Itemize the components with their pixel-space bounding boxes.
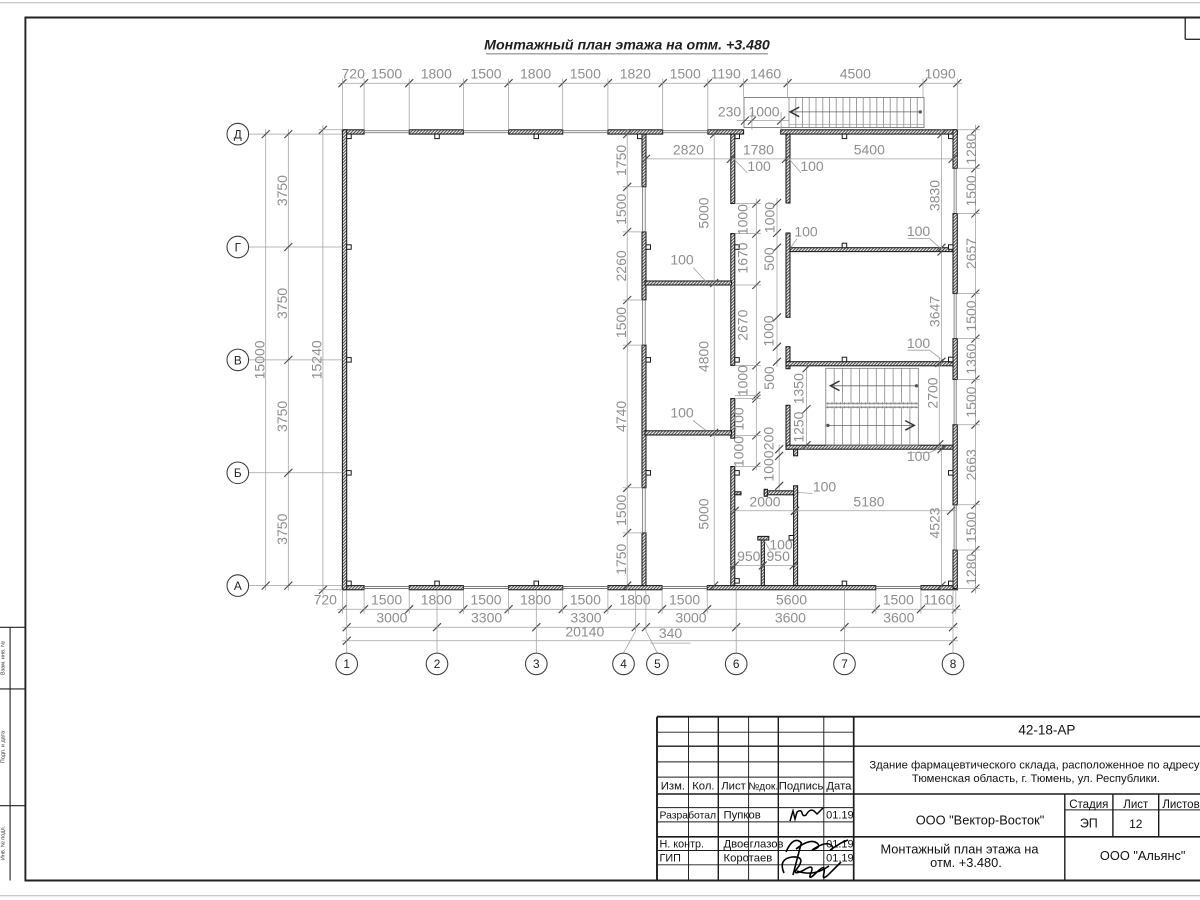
svg-text:12: 12 <box>1129 817 1143 831</box>
svg-text:ЭП: ЭП <box>1080 817 1098 831</box>
svg-text:3830: 3830 <box>927 180 943 211</box>
svg-text:3300: 3300 <box>471 610 502 626</box>
svg-text:2700: 2700 <box>925 377 941 408</box>
svg-text:340: 340 <box>659 625 683 641</box>
svg-text:Дата: Дата <box>826 780 852 792</box>
svg-text:1190: 1190 <box>711 66 741 82</box>
svg-text:5180: 5180 <box>853 493 884 509</box>
svg-text:1500: 1500 <box>963 512 979 543</box>
svg-text:100: 100 <box>794 224 818 240</box>
svg-text:Б: Б <box>234 466 242 480</box>
svg-text:ГИП: ГИП <box>660 853 681 865</box>
svg-text:1750: 1750 <box>613 544 629 575</box>
svg-text:500: 500 <box>761 247 777 271</box>
svg-text:1250: 1250 <box>791 411 807 442</box>
svg-text:Листов: Листов <box>1162 799 1199 811</box>
svg-text:8: 8 <box>950 657 957 671</box>
svg-text:Кол.: Кол. <box>692 780 714 792</box>
svg-text:100: 100 <box>731 407 747 431</box>
svg-text:Разработал: Разработал <box>660 810 717 822</box>
svg-text:Монтажный план этажа на отм. +: Монтажный план этажа на отм. +3.480 <box>484 38 770 54</box>
svg-text:1500: 1500 <box>963 300 979 331</box>
svg-text:1000: 1000 <box>731 436 747 467</box>
svg-text:1500: 1500 <box>613 495 629 526</box>
svg-text:1500: 1500 <box>670 66 701 82</box>
svg-text:Коротаев: Коротаев <box>724 853 773 865</box>
svg-text:3750: 3750 <box>274 288 290 319</box>
svg-text:№док.: №док. <box>748 781 778 792</box>
svg-text:1500: 1500 <box>883 592 914 608</box>
svg-text:1670: 1670 <box>735 242 751 273</box>
svg-text:5000: 5000 <box>696 197 712 228</box>
svg-text:42-18-АР: 42-18-АР <box>1018 723 1075 738</box>
svg-text:1800: 1800 <box>421 592 452 608</box>
svg-text:3000: 3000 <box>675 610 706 626</box>
svg-text:500: 500 <box>761 366 777 390</box>
svg-text:1500: 1500 <box>963 175 979 206</box>
svg-text:1280: 1280 <box>963 133 979 164</box>
svg-text:01.19: 01.19 <box>826 810 854 822</box>
svg-text:1820: 1820 <box>620 66 651 82</box>
svg-text:230: 230 <box>718 103 742 119</box>
svg-text:1000: 1000 <box>761 450 777 481</box>
svg-text:Г: Г <box>235 240 242 254</box>
svg-text:1000: 1000 <box>735 365 751 396</box>
svg-text:ООО "Вектор-Восток": ООО "Вектор-Восток" <box>916 813 1045 828</box>
svg-text:Подпись: Подпись <box>779 780 824 792</box>
svg-text:2000: 2000 <box>749 493 780 509</box>
svg-text:1500: 1500 <box>669 592 700 608</box>
svg-text:1500: 1500 <box>570 66 601 82</box>
svg-text:1500: 1500 <box>470 592 501 608</box>
svg-text:1500: 1500 <box>963 386 979 417</box>
svg-text:5400: 5400 <box>854 141 885 157</box>
svg-text:2260: 2260 <box>613 250 629 281</box>
svg-text:Д: Д <box>234 128 242 142</box>
svg-text:4523: 4523 <box>927 507 943 538</box>
svg-text:1: 1 <box>343 657 350 671</box>
svg-text:3600: 3600 <box>775 610 806 626</box>
svg-text:720: 720 <box>314 592 338 608</box>
svg-text:15000: 15000 <box>251 340 267 379</box>
svg-text:6: 6 <box>733 657 740 671</box>
svg-text:1500: 1500 <box>470 66 501 82</box>
svg-text:1280: 1280 <box>963 554 979 585</box>
svg-text:4800: 4800 <box>696 341 712 372</box>
svg-text:Здание фармацевтического склад: Здание фармацевтического склада, располо… <box>869 760 1200 772</box>
svg-text:7: 7 <box>841 657 848 671</box>
svg-text:Лист: Лист <box>721 780 746 792</box>
svg-text:3: 3 <box>533 657 540 671</box>
svg-text:1500: 1500 <box>613 194 629 225</box>
svg-text:1750: 1750 <box>613 145 629 176</box>
svg-text:2820: 2820 <box>673 141 704 157</box>
svg-text:2663: 2663 <box>963 449 979 480</box>
svg-text:Пупков: Пупков <box>724 810 761 822</box>
svg-text:3000: 3000 <box>376 610 407 626</box>
svg-text:1360: 1360 <box>963 343 979 374</box>
svg-text:100: 100 <box>670 252 694 268</box>
svg-text:2657: 2657 <box>963 238 979 269</box>
svg-text:3750: 3750 <box>274 175 290 206</box>
svg-text:3750: 3750 <box>274 513 290 544</box>
svg-text:5600: 5600 <box>776 592 807 608</box>
svg-text:Стадия: Стадия <box>1069 799 1108 811</box>
svg-text:200: 200 <box>761 427 777 451</box>
svg-text:100: 100 <box>800 158 824 174</box>
svg-text:100: 100 <box>907 223 931 239</box>
svg-text:1000: 1000 <box>762 202 778 233</box>
svg-text:100: 100 <box>670 405 694 421</box>
svg-text:20140: 20140 <box>565 624 604 640</box>
svg-text:1800: 1800 <box>520 592 551 608</box>
svg-text:2670: 2670 <box>735 309 751 340</box>
svg-text:5000: 5000 <box>696 498 712 529</box>
svg-text:4500: 4500 <box>840 66 871 82</box>
svg-text:3647: 3647 <box>927 296 943 327</box>
svg-text:950: 950 <box>737 548 761 564</box>
svg-text:1500: 1500 <box>371 592 402 608</box>
svg-text:Лист: Лист <box>1123 799 1149 811</box>
svg-text:Двоеглазов: Двоеглазов <box>724 838 784 850</box>
svg-text:ООО "Альянс": ООО "Альянс" <box>1100 848 1186 863</box>
svg-text:1800: 1800 <box>421 66 452 82</box>
svg-text:100: 100 <box>769 537 793 553</box>
svg-text:100: 100 <box>747 158 771 174</box>
svg-text:А: А <box>234 579 242 593</box>
svg-text:Подп. и дата: Подп. и дата <box>1 730 7 763</box>
svg-text:3750: 3750 <box>274 401 290 432</box>
svg-text:1160: 1160 <box>923 592 953 608</box>
svg-text:1500: 1500 <box>613 307 629 338</box>
svg-text:1500: 1500 <box>371 66 402 82</box>
svg-text:720: 720 <box>342 66 366 82</box>
svg-text:4: 4 <box>620 657 627 671</box>
svg-text:Инв. № подл.: Инв. № подл. <box>1 825 7 860</box>
svg-text:Взам. инв. №: Взам. инв. № <box>1 641 7 675</box>
svg-text:1460: 1460 <box>750 66 781 82</box>
svg-text:1000: 1000 <box>748 103 779 119</box>
svg-text:1780: 1780 <box>743 141 774 157</box>
svg-text:100: 100 <box>907 448 931 464</box>
svg-text:Тюменская область, г. Тюмень,: Тюменская область, г. Тюмень, ул. Респуб… <box>912 773 1160 785</box>
svg-text:В: В <box>234 353 242 367</box>
svg-text:отм. +3.480.: отм. +3.480. <box>930 855 1002 870</box>
svg-text:1000: 1000 <box>761 315 777 346</box>
svg-text:1090: 1090 <box>925 66 956 82</box>
svg-text:5: 5 <box>654 657 661 671</box>
svg-text:100: 100 <box>813 479 837 495</box>
svg-text:1000: 1000 <box>735 204 751 235</box>
svg-text:1500: 1500 <box>570 592 601 608</box>
svg-text:100: 100 <box>907 335 931 351</box>
svg-text:1800: 1800 <box>520 66 551 82</box>
svg-text:4740: 4740 <box>613 401 629 432</box>
svg-text:2: 2 <box>434 657 441 671</box>
svg-text:1350: 1350 <box>791 373 807 404</box>
svg-text:3600: 3600 <box>883 610 914 626</box>
svg-text:Изм.: Изм. <box>661 780 685 792</box>
svg-text:15240: 15240 <box>308 340 324 379</box>
svg-text:Н. контр.: Н. контр. <box>660 838 705 850</box>
